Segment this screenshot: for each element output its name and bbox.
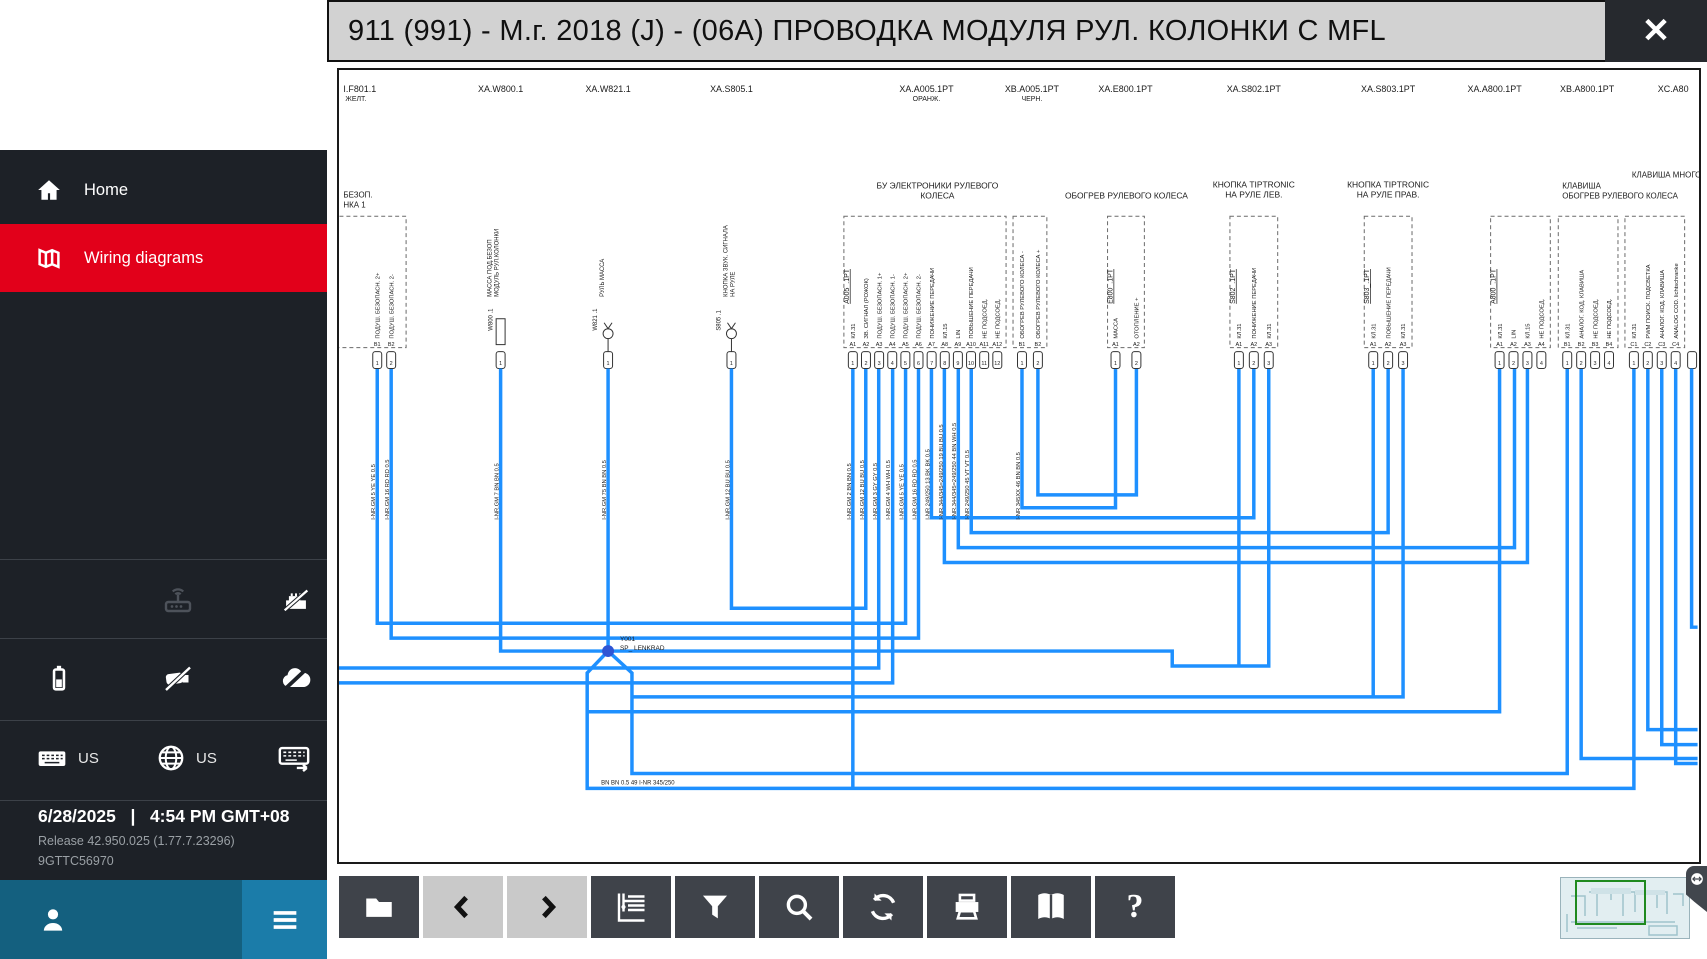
- wire-label: I-NR.GM 4 WH WH 0.5: [886, 460, 892, 520]
- time-label: 4:54 PM GMT+08: [150, 806, 290, 826]
- pin-number: 3: [1594, 361, 1597, 367]
- pin-id: A2: [1133, 342, 1140, 348]
- home-icon: [36, 177, 62, 203]
- component-title: КОЛЕСА: [920, 190, 954, 200]
- component-title: НКА 1: [343, 200, 366, 209]
- pin-number: 3: [1267, 361, 1270, 367]
- connector-designator: E800_.1PT: [1108, 268, 1115, 304]
- sidebar-item-label: Home: [84, 181, 128, 200]
- pin-desc: НЕ ПОДСОЕД.: [1607, 298, 1613, 338]
- pin-id: A12: [992, 342, 1002, 348]
- pin-number: 1: [1237, 361, 1240, 367]
- pin-desc: КЛ.31: [1498, 323, 1504, 338]
- component-desc: МОДУЛЬ РУЛ.КОЛОНКИ: [495, 229, 501, 297]
- pin-desc: НЕ ПОДСОЕД.: [1540, 298, 1546, 338]
- wire-label: I-NR.GM 2 BN BN 0.5: [847, 463, 853, 519]
- pin-desc: КЛ.31: [1565, 323, 1571, 338]
- pin-number: 1: [499, 361, 502, 367]
- component-title: ОБОГРЕВ РУЛЕВОГО КОЛЕСА: [1065, 190, 1188, 200]
- component-title: НА РУЛЕ ПРАВ.: [1357, 189, 1420, 199]
- connector-designator: A800_.1PT: [1491, 268, 1498, 304]
- connector-label: XA.A800.1PT: [1468, 84, 1523, 94]
- connector-label: XC.A80: [1658, 84, 1689, 94]
- connector-color: ЖЕЛТ.: [345, 96, 366, 103]
- pin-number: 1: [851, 361, 854, 367]
- pin-id: A1: [1496, 342, 1503, 348]
- pin-number: 3: [1526, 361, 1529, 367]
- filter-button[interactable]: [675, 876, 755, 938]
- pin-desc: КЛ.31: [1371, 323, 1377, 338]
- keyboard-layout-label: US: [78, 750, 99, 767]
- wire-label: I-NR.GM 16 RD RD 0.5: [385, 459, 391, 519]
- pin-id: A7: [928, 342, 935, 348]
- component-desc: КНОПКА ЗВУК. СИГНАЛА: [723, 225, 729, 297]
- search-button[interactable]: [759, 876, 839, 938]
- search-icon: [782, 890, 816, 924]
- pin-number: 2: [1252, 361, 1255, 367]
- next-button[interactable]: [507, 876, 587, 938]
- date-label: 6/28/2025: [38, 806, 116, 826]
- pin-number: 12: [994, 361, 1000, 367]
- language-indicator[interactable]: US: [156, 736, 266, 780]
- component-title: КНОПКА TIPTRONIC: [1213, 179, 1295, 189]
- folder-icon: [362, 890, 396, 924]
- pin-desc: ПОДУШ. БЕЗОПАСН. 2-: [917, 274, 923, 339]
- help-button[interactable]: ?: [1095, 876, 1175, 938]
- component-desc: РУЛЬ МАССА: [600, 259, 606, 297]
- pin-number: 2: [1387, 361, 1390, 367]
- pin-number: 6: [917, 361, 920, 367]
- pin-desc: МАССА: [1114, 318, 1120, 339]
- pin-number: 3: [1660, 361, 1663, 367]
- menu-button[interactable]: [242, 880, 327, 959]
- connector-label: XA.W800.1: [478, 84, 523, 94]
- pin-id: A4: [1538, 342, 1545, 348]
- connector-label: XA.E800.1PT: [1098, 84, 1153, 94]
- vci-disconnected-icon: [150, 654, 206, 702]
- pin-id: B1: [1019, 342, 1026, 348]
- wire-label: I-NR.344/345=249/250 44 BN WH 0.5: [952, 423, 958, 520]
- connector-designator: W821 .1: [593, 308, 599, 331]
- wire-label: I-NR.GM 5 YE YE 0.5: [899, 464, 905, 520]
- pin-id: B3: [1592, 342, 1599, 348]
- pin-number: 1: [730, 361, 733, 367]
- pin-id: B4: [1606, 342, 1613, 348]
- connector-designator: S803_.1PT: [1364, 268, 1371, 304]
- wire-label: BN BN 0.5 49 I-NR 345/250: [601, 780, 675, 786]
- pin-desc: PWM ПОИСК. ПОДСВЕТКА: [1646, 264, 1652, 338]
- pin-id: C3: [1658, 342, 1665, 348]
- wire-label: I-NR 345XX 46 BN BN 0.5: [1016, 452, 1022, 520]
- wiring-diagram-canvas[interactable]: I.F801.1 ЖЕЛТ. XA.W800.1 XA.W821.1 XA.S8…: [337, 68, 1701, 864]
- language-label: US: [196, 750, 217, 767]
- pin-desc: ПОДУШ. БЕЗОПАСН. 1-: [890, 274, 896, 339]
- release-version: Release 42.950.025 (1.77.7.23296): [38, 834, 235, 848]
- open-diagram-button[interactable]: [339, 876, 419, 938]
- pin-id: A1: [1236, 342, 1243, 348]
- pin-desc: ПОДУШ. БЕЗОПАСН. 1+: [877, 272, 883, 339]
- pin-id: A2: [1250, 342, 1257, 348]
- pin-number: 8: [943, 361, 946, 367]
- pin-id: A11: [980, 342, 989, 348]
- pin-desc: ПОДУШ. БЕЗОПАСН. 2+: [904, 272, 910, 339]
- wire-label: I-NR.344/345=249/250 19 BU BU 0.5: [939, 424, 945, 519]
- pin-desc: LIN: [956, 330, 962, 339]
- minimap[interactable]: [1560, 877, 1690, 939]
- pin-number: 4: [1674, 361, 1677, 367]
- connector-label: XA.A005.1PT: [899, 84, 954, 94]
- session-arrows-icon: [1690, 872, 1704, 886]
- pin-desc: КЛ.31: [1401, 323, 1407, 338]
- minimap-viewport[interactable]: [1575, 880, 1646, 925]
- cloud-disconnected-icon: [268, 654, 324, 702]
- ethernet-disconnected-icon: [268, 575, 324, 623]
- pin-desc: НЕ ПОДСОЕД.: [982, 298, 988, 338]
- pin-number: 2: [1135, 361, 1138, 367]
- pin-id: B2: [1578, 342, 1585, 348]
- pin-desc: КЛ.15: [943, 323, 949, 338]
- wire-label: I-NR.GM 16 RD RD 0.5: [913, 459, 919, 519]
- pin-id: C1: [1630, 342, 1637, 348]
- connector-designator: A005_.1PT: [844, 268, 851, 304]
- component-boxes: [337, 216, 1685, 347]
- pin-desc: НЕ ПОДСОЕД.: [995, 298, 1001, 338]
- connector-designator: S802_.1PT: [1230, 268, 1237, 304]
- pin-terminal: [1688, 352, 1697, 369]
- pin-desc: ЗВ. СИГНАЛ (РОЖОК): [864, 278, 870, 339]
- previous-button[interactable]: [423, 876, 503, 938]
- pin-number: 2: [864, 361, 867, 367]
- component-title: КЛАВИША МНОГО: [1632, 170, 1701, 179]
- pin-desc: ОБОГРЕВ РУЛЕВОГО КОЛЕСА -: [1020, 251, 1026, 339]
- pin-desc: КЛ.31: [1632, 323, 1638, 338]
- pin-number: 11: [981, 361, 987, 367]
- splice-id: Y001: [620, 636, 635, 643]
- keyboard-layout-indicator[interactable]: US: [36, 736, 146, 780]
- help-icon: ?: [1127, 888, 1144, 926]
- pin-id: B2: [1035, 342, 1042, 348]
- pin-id: A1: [1370, 342, 1377, 348]
- pin-id: B1: [1564, 342, 1571, 348]
- wire-label: I-NR.GM 3 GY GY 0.5: [873, 463, 879, 520]
- connector-color: ОРАНЖ.: [913, 96, 941, 103]
- connector-color: ЧЕРН.: [1021, 96, 1042, 103]
- wire-label: I-NR 249/250 13 BK BK 0.5: [926, 449, 932, 520]
- pin-desc: ОТОПЛЕНИЕ +: [1135, 297, 1141, 339]
- highlighted-wires: [337, 368, 1698, 788]
- pin-desc: ANALOG COD. lichtschranke: [1674, 263, 1680, 338]
- user-icon: [36, 903, 70, 937]
- pin-id: C4: [1672, 342, 1679, 348]
- pin-number: 1: [607, 361, 610, 367]
- diagram-tree-button[interactable]: [591, 876, 671, 938]
- terminal-symbol: [496, 319, 505, 345]
- divider: [0, 720, 327, 721]
- chevron-right-icon: [532, 892, 562, 922]
- datetime: 6/28/2025 | 4:54 PM GMT+08: [38, 806, 290, 827]
- pin-number: 1: [376, 361, 379, 367]
- splice-point: [602, 645, 614, 657]
- pin-number: 2: [390, 361, 393, 367]
- component-title: НА РУЛЕ ЛЕВ.: [1225, 189, 1282, 199]
- pin-desc: КЛ.31: [1267, 323, 1273, 338]
- keyboard-icon: [36, 742, 68, 774]
- pin-number: 4: [891, 361, 894, 367]
- pin-number: 1: [1498, 361, 1501, 367]
- close-icon: ✕: [1642, 11, 1671, 51]
- pin-number: 5: [904, 361, 907, 367]
- battery-icon: [33, 654, 85, 702]
- component-title: КЛАВИША: [1562, 181, 1601, 190]
- pin-id: A3: [1400, 342, 1407, 348]
- ring-terminal: [603, 323, 613, 352]
- pin-desc: ПОВЫШЕНИЕ ПЕРЕДАЧИ: [969, 267, 975, 338]
- pin-id: A6: [915, 342, 922, 348]
- component-desc: МАССА ПОД.БЕЗОП: [488, 239, 494, 297]
- pin-number: 4: [1540, 361, 1543, 367]
- printer-icon: [950, 890, 984, 924]
- onscreen-keyboard-icon[interactable]: [266, 736, 322, 780]
- pin-desc: ПОНИЖЕНИЕ ПЕРЕДАЧИ: [1252, 268, 1258, 339]
- connector-label: XA.W821.1: [585, 84, 630, 94]
- divider: [0, 800, 327, 801]
- pin-id: A3: [1265, 342, 1272, 348]
- pin-id: A3: [876, 342, 883, 348]
- hamburger-menu-icon: [268, 903, 302, 937]
- pin-id: A1: [1112, 342, 1119, 348]
- pin-number: 3: [1402, 361, 1405, 367]
- pin-number: 1: [1114, 361, 1117, 367]
- connector-label: XA.S802.1PT: [1227, 84, 1282, 94]
- wire-label: I-NR 249/250 45 VT VT 0.5: [965, 450, 971, 520]
- sidebar-item-wiring-diagrams[interactable]: Wiring diagrams: [0, 224, 327, 292]
- pin-number: 3: [878, 361, 881, 367]
- pin-id: A4: [889, 342, 896, 348]
- pin-id: C2: [1644, 342, 1651, 348]
- refresh-button[interactable]: [843, 876, 923, 938]
- pin-desc: ОБОГРЕВ РУЛЕВОГО КОЛЕСА +: [1036, 249, 1042, 339]
- sidebar-item-label: Wiring diagrams: [84, 249, 203, 268]
- pin-id: A3: [1524, 342, 1531, 348]
- pin-number: 2: [1512, 361, 1515, 367]
- pin-desc: КЛ.31: [851, 323, 857, 338]
- connector-designator: S805 .1: [717, 309, 723, 330]
- wifi-router-icon: [150, 575, 206, 623]
- component-title: БУ ЭЛЕКТРОНИКИ РУЛЕВОГО: [877, 180, 999, 190]
- pin-id: A9: [955, 342, 962, 348]
- divider: [0, 638, 327, 639]
- pin-desc: ПОНИЖЕНИЕ ПЕРЕДАЧИ: [930, 268, 936, 339]
- globe-icon: [156, 743, 186, 773]
- pin-id: B2: [388, 342, 395, 348]
- pin-desc: АНАЛОГ. КОД. КЛАВИША: [1579, 270, 1585, 339]
- pin-desc: LIN: [1512, 330, 1518, 339]
- pin-id: A2: [1385, 342, 1392, 348]
- connector-label: XB.A005.1PT: [1005, 84, 1060, 94]
- pin-number: 1: [1020, 361, 1023, 367]
- connector-label: XA.S803.1PT: [1361, 84, 1416, 94]
- pin-number: 2: [1036, 361, 1039, 367]
- wire-label: I-NR.GM 5 YE YE 0.5: [371, 464, 377, 520]
- component-desc: НА РУЛЕ: [730, 272, 736, 297]
- pin-id: A1: [849, 342, 856, 348]
- chevron-left-icon: [448, 892, 478, 922]
- connector-label: XB.A800.1PT: [1560, 84, 1615, 94]
- wire-label: I-NR.GM 12 BU BU 0.5: [860, 460, 866, 520]
- pin-desc: НЕ ПОДСОЕД.: [1593, 298, 1599, 338]
- connector-label: XA.S805.1: [710, 84, 753, 94]
- divider: [0, 559, 327, 560]
- sidebar-item-home[interactable]: Home: [0, 156, 327, 224]
- component-title: КНОПКА TIPTRONIC: [1347, 179, 1429, 189]
- pin-number: 2: [1646, 361, 1649, 367]
- close-button[interactable]: ✕: [1605, 0, 1707, 62]
- pin-desc: ПОДУШ. БЕЗОПАСН. 2-: [389, 274, 395, 339]
- pin-id: A5: [902, 342, 909, 348]
- pin-number: 1: [1372, 361, 1375, 367]
- refresh-icon: [866, 890, 900, 924]
- pin-number: 2: [1580, 361, 1583, 367]
- pin-number: 9: [956, 361, 959, 367]
- diagram-title: 911 (991) - М.г. 2018 (J) - (06А) ПРОВОД…: [329, 2, 1705, 60]
- pin-id: A2: [863, 342, 870, 348]
- sidebar: Home Wiring diagrams: [0, 150, 327, 880]
- connector-designator: W800 .1: [489, 308, 495, 331]
- component-title: БЕЗОП.: [343, 190, 372, 199]
- connector-label: I.F801.1: [343, 84, 376, 94]
- wiring-diagrams-icon: [36, 246, 62, 271]
- book-icon: [1033, 889, 1069, 925]
- diagram-tree-icon: [613, 889, 649, 925]
- pin-number: 1: [1566, 361, 1569, 367]
- splice-name: SP_ LENKRAD: [620, 645, 665, 652]
- pin-number: 1: [1632, 361, 1635, 367]
- pin-desc: АНАЛОГ. КОД. КЛАВИША: [1660, 270, 1666, 339]
- component-title: ОБОГРЕВ РУЛЕВОГО КОЛЕСА: [1562, 191, 1678, 200]
- pin-number: 4: [1607, 361, 1610, 367]
- user-bar[interactable]: [0, 880, 242, 959]
- pin-desc: КЛ.15: [1526, 323, 1532, 338]
- pin-desc: ПОДУШ. БЕЗОПАСН. 2+: [375, 272, 381, 339]
- pin-id: A10: [966, 342, 976, 348]
- pin-number: 10: [968, 361, 974, 367]
- pin-id: B1: [374, 342, 381, 348]
- device-id: 9GTTC56970: [38, 854, 114, 868]
- pin-id: A2: [1510, 342, 1517, 348]
- pin-id: A8: [941, 342, 948, 348]
- diagram-titlebar: 911 (991) - М.г. 2018 (J) - (06А) ПРОВОД…: [327, 0, 1707, 62]
- pin-number: 7: [930, 361, 933, 367]
- pin-desc: КЛ.31: [1237, 323, 1243, 338]
- print-button[interactable]: [927, 876, 1007, 938]
- ring-terminal: [726, 323, 736, 352]
- pin-desc: ПОВЫШЕНИЕ ПЕРЕДАЧИ: [1386, 267, 1392, 338]
- datetime-separator: |: [130, 806, 135, 826]
- filter-icon: [698, 890, 732, 924]
- manual-button[interactable]: [1011, 876, 1091, 938]
